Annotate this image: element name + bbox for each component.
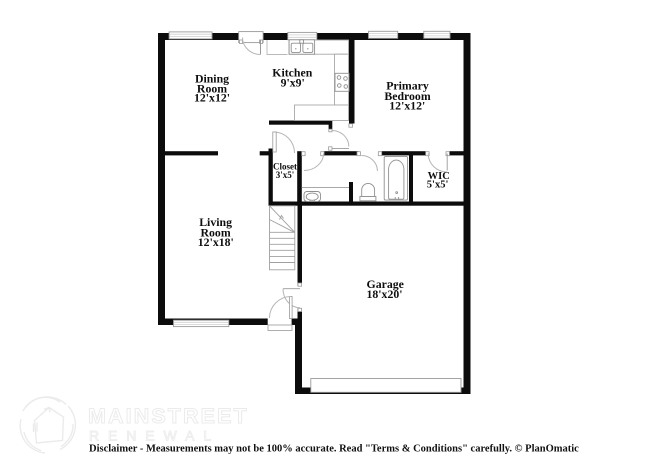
svg-text:12'x18': 12'x18' [198,235,234,249]
svg-text:Disclaimer - Measurements may: Disclaimer - Measurements may not be 100… [89,444,579,455]
svg-text:5'x5': 5'x5' [427,180,449,191]
svg-text:18'x20': 18'x20' [366,287,402,301]
svg-text:MAINSTREET: MAINSTREET [88,404,249,428]
svg-text:3'x5': 3'x5' [276,170,295,180]
svg-text:12'x12': 12'x12' [194,91,230,105]
svg-text:9'x9': 9'x9' [281,76,305,90]
svg-text:RENEWAL: RENEWAL [89,428,220,444]
svg-text:12'x12': 12'x12' [389,98,425,112]
